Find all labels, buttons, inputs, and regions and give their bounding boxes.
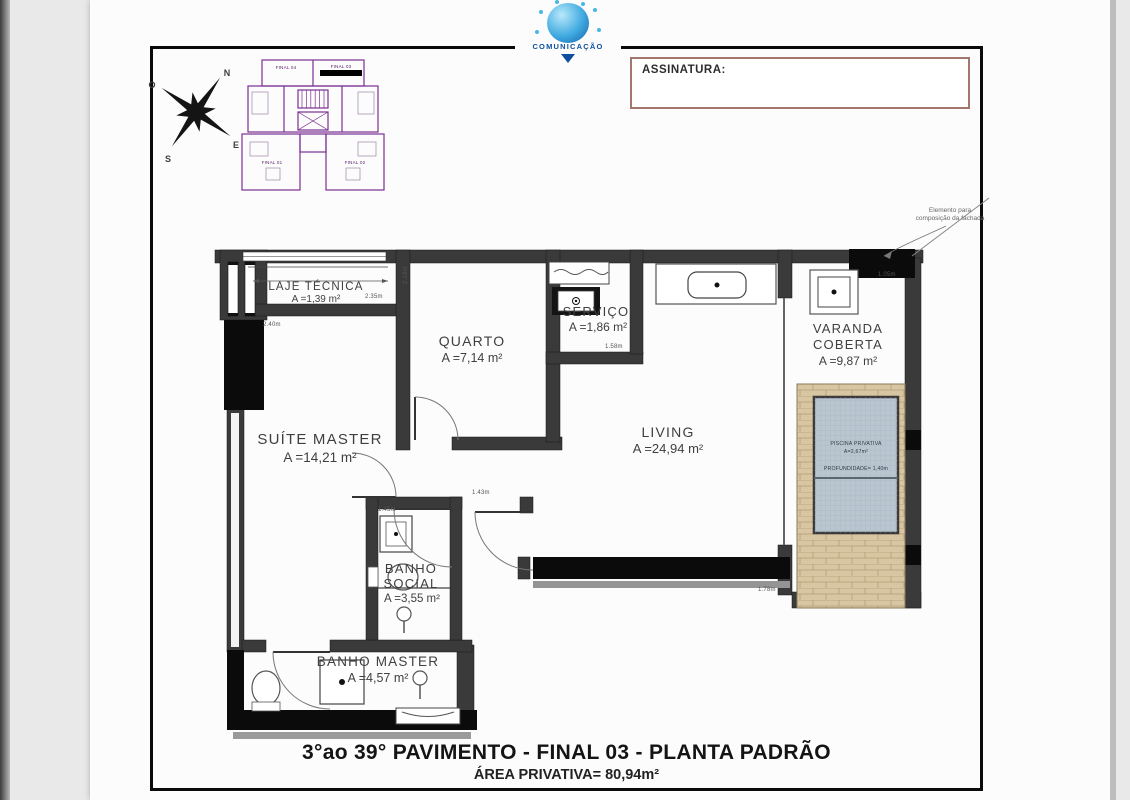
sink-icon	[397, 607, 411, 621]
pool-area: PISCINA PRIVATIVA A=2,67m² PROFUNDIDADE=…	[797, 384, 905, 608]
pool-label3: PROFUNDIDADE= 1,40m	[824, 466, 888, 472]
dim-2: 2.19m	[403, 266, 409, 284]
room-label-bmaster: BANHO MASTER	[317, 654, 439, 669]
annotation-line1: Elemento para	[929, 207, 972, 214]
logo-node-icon	[593, 8, 597, 12]
key-plan-final03: FINAL 03	[331, 64, 352, 69]
room-area-bsocial: A =3,55 m²	[384, 593, 440, 605]
key-plan-highlight-bar	[320, 70, 362, 76]
room-area-suite: A =14,21 m²	[283, 450, 357, 465]
sheet-title: 3°ao 39° PAVIMENTO - FINAL 03 - PLANTA P…	[150, 741, 983, 765]
room-label-bsocial2: SOCIAL	[384, 576, 439, 591]
scanned-drawing-sheet: ASSINATURA: N E S O	[0, 0, 1130, 800]
dim-4: 1.45m	[378, 507, 396, 513]
toilet-icon	[252, 671, 280, 705]
room-area-living: A =24,94 m²	[633, 441, 704, 456]
room-area-varanda: A =9,87 m²	[819, 354, 877, 368]
compass-n: N	[224, 68, 231, 78]
room-area-quarto: A =7,14 m²	[442, 351, 503, 365]
compass-o: O	[148, 80, 155, 90]
compass-star-icon	[162, 78, 231, 147]
sheet-subtitle: ÁREA PRIVATIVA= 80,94m²	[150, 767, 983, 783]
key-plan-final04: FINAL 04	[276, 65, 297, 70]
logo-node-icon	[539, 10, 543, 14]
room-area-bmaster: A =4,57 m²	[348, 671, 409, 685]
room-label-quarto: QUARTO	[439, 333, 506, 349]
room-label-varanda1: VARANDA	[813, 321, 883, 336]
key-plan-final02: FINAL 02	[345, 160, 366, 165]
dim-0: 2.40m	[263, 322, 281, 328]
room-area-servico: A =1,86 m²	[569, 320, 627, 334]
compass-s: S	[165, 154, 171, 164]
logo-node-icon	[581, 2, 585, 6]
dim-1: 2.35m	[365, 294, 383, 300]
room-label-suite: SUÍTE MASTER	[257, 431, 382, 448]
logo-brain-icon	[547, 3, 589, 43]
logo-node-icon	[535, 30, 539, 34]
pool-label2: A=2,67m²	[844, 449, 868, 455]
dim-3: 1.58m	[605, 344, 623, 350]
logo-wordmark: COMUNICAÇÃO	[515, 42, 621, 51]
annotation-line2: composição da fachada	[916, 215, 985, 222]
kitchen-counter	[656, 264, 776, 304]
key-plan-final01: FINAL 01	[262, 160, 283, 165]
pool-label1: PISCINA PRIVATIVA	[830, 441, 882, 447]
wall-core	[231, 413, 239, 647]
sink-icon	[413, 671, 427, 685]
compass-rose: N E S O	[148, 68, 239, 164]
varanda-fixture	[810, 270, 858, 314]
logo-node-icon	[597, 28, 601, 32]
wall-shadow	[233, 732, 471, 739]
room-label-varanda2: COBERTA	[813, 337, 883, 352]
compass-e: E	[233, 140, 239, 150]
dim-5: 1.43m	[472, 490, 490, 496]
key-plan: FINAL 04 FINAL 03 FINAL 01 FINAL 02	[242, 60, 384, 190]
room-label-living: LIVING	[641, 424, 694, 440]
logo-pointer-icon	[561, 54, 575, 63]
room-area-laje: A =1,39 m²	[292, 294, 341, 305]
dim-6: 1.78m	[758, 587, 776, 593]
room-label-laje: LAJE TÉCNICA	[268, 280, 363, 293]
dim-7: 1.05m	[878, 272, 896, 278]
room-label-bsocial1: BANHO	[385, 561, 437, 576]
floor-plan-drawing: N E S O FINAL 04	[0, 0, 1130, 800]
logo: COMUNICAÇÃO	[515, 0, 621, 70]
room-label-servico: SERVIÇO	[563, 304, 630, 319]
logo-node-icon	[555, 0, 559, 4]
wall-shadow2	[533, 581, 790, 588]
room-labels: LAJE TÉCNICA A =1,39 m² QUARTO A =7,14 m…	[257, 280, 883, 685]
